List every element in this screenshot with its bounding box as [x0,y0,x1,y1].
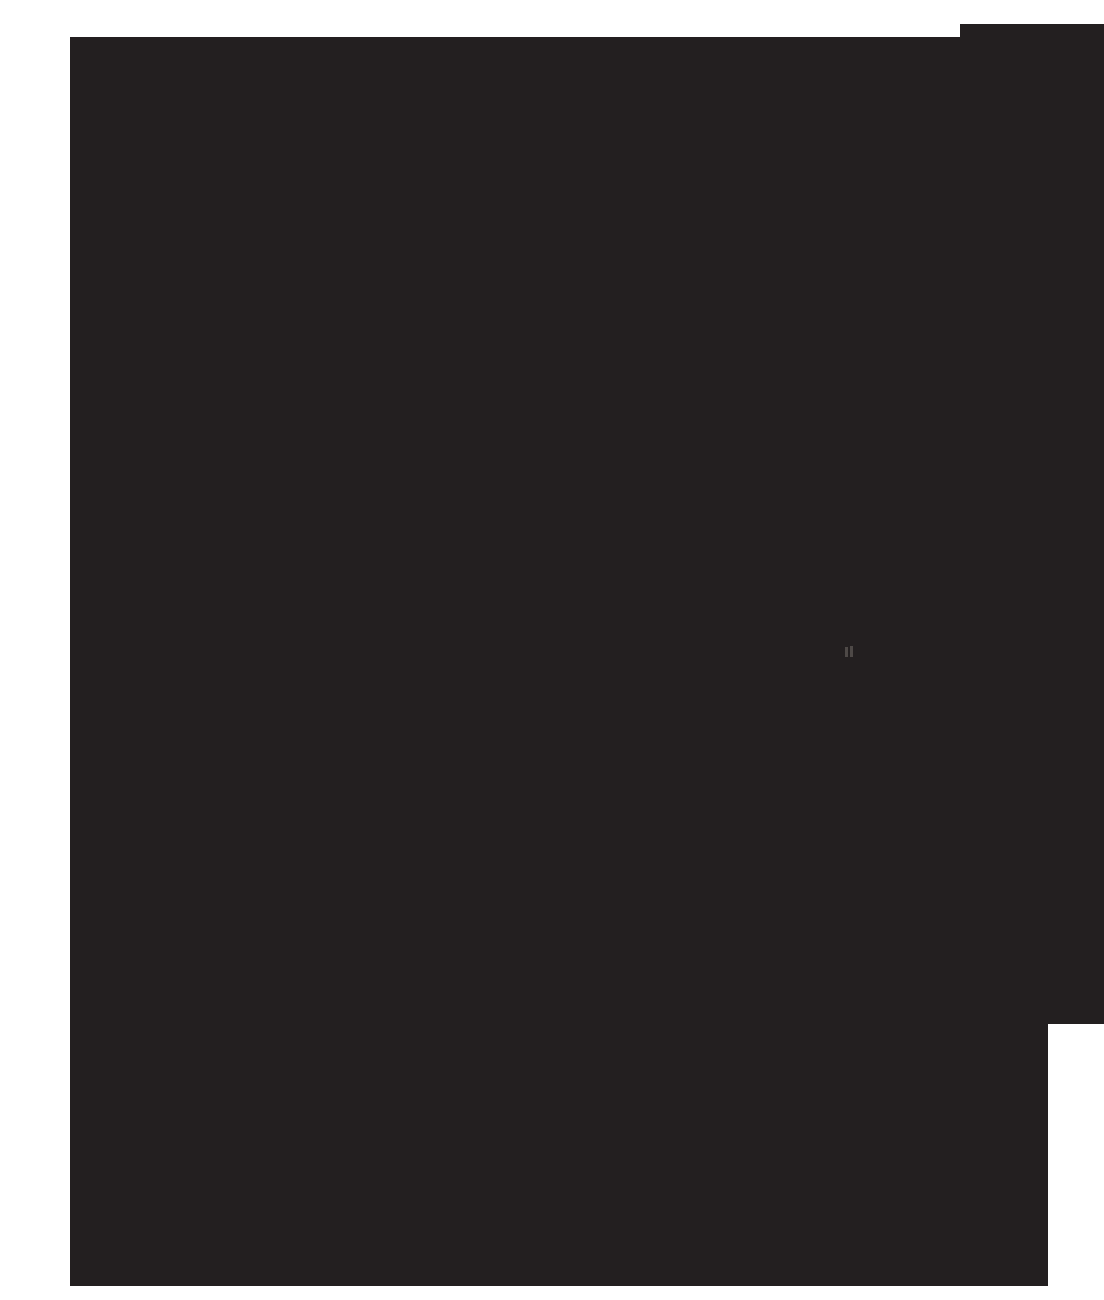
black-region-main [70,37,1048,1286]
page-background [0,0,1104,1300]
black-region-right [960,24,1104,1024]
double-vertical-bars-icon-right-bar [850,646,853,657]
double-vertical-bars-icon-left-bar [845,647,848,657]
double-vertical-bars-icon [845,646,853,657]
